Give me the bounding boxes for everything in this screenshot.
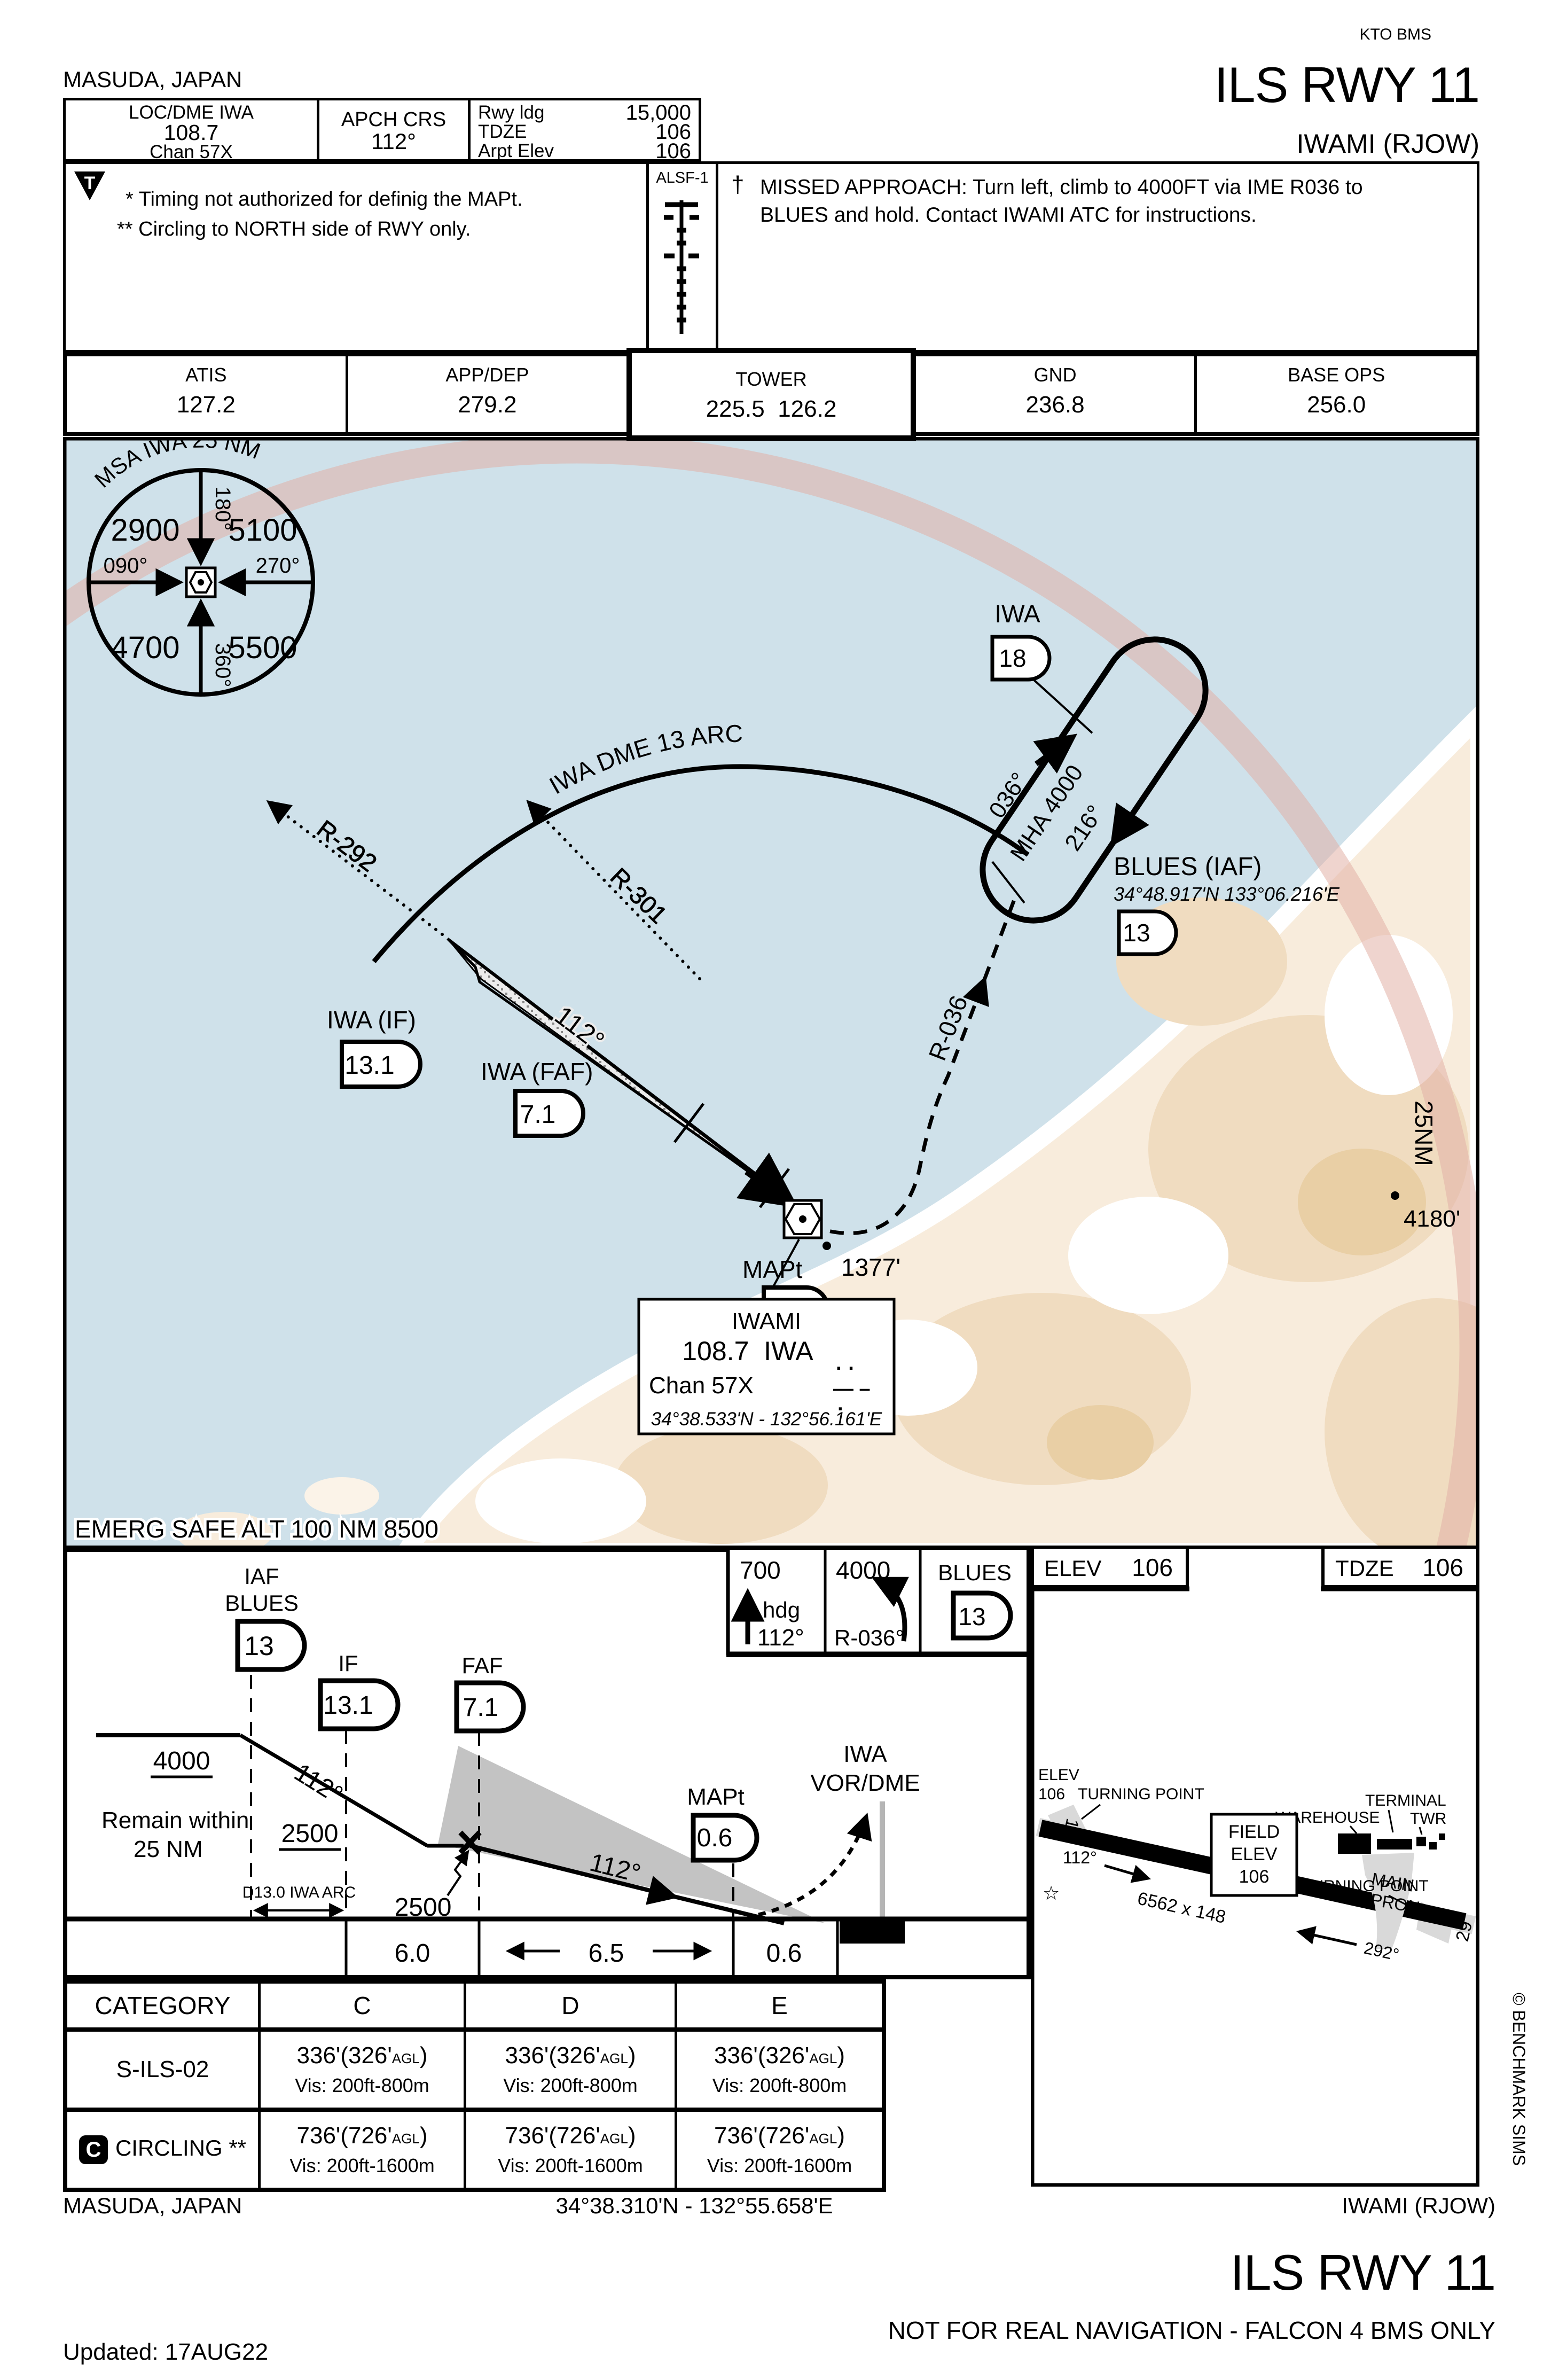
mb2-radial: R-036°: [834, 1625, 904, 1650]
arpt-elev-value: 106: [655, 142, 691, 161]
faf-dme: 7.1: [520, 1101, 556, 1129]
alt-4000: 4000: [153, 1747, 210, 1775]
freq-value: 236.8: [916, 392, 1195, 418]
freq-value: 127.2: [67, 392, 346, 418]
footer-airport: IWAMI (RJOW): [961, 2193, 1495, 2219]
circling-label: CIRCLING **: [115, 2135, 246, 2160]
dagger-icon: †: [731, 171, 744, 198]
turning-point-right: TURNING POINT: [1302, 1877, 1429, 1895]
mins-cell: 336'(326'AGL) Vis: 200ft-800m: [676, 2030, 884, 2110]
field-elev-box: FIELD ELEV 106: [1211, 1814, 1297, 1895]
mins-agl: AGL: [600, 2050, 628, 2066]
mb3-fix: BLUES: [938, 1560, 1012, 1585]
profile-faf: FAF 7.1: [457, 1653, 523, 1731]
circling-badge: C: [79, 2135, 108, 2164]
t-warning-icon: T: [74, 171, 105, 200]
freq-label: BASE OPS: [1197, 364, 1476, 386]
footer-copyright: © BENCHMARK SIMS: [1509, 1993, 1529, 2166]
fix-if: IWA (IF) 13.1: [327, 1006, 420, 1087]
mins-cell: 336'(326'AGL) Vis: 200ft-800m: [465, 2030, 676, 2110]
mb3-dme: 13: [958, 1603, 985, 1630]
mins-close: ): [628, 2123, 636, 2149]
nav-chan: Chan 57X: [66, 143, 317, 162]
runway-bar: [840, 1921, 905, 1944]
airport-diagram: ELEV 106 TDZE 106 11 29 6562 x 148 ELEV …: [1031, 1546, 1479, 2187]
tdze-value: 106: [1422, 1554, 1463, 1581]
freq-label: TOWER: [632, 368, 911, 391]
navaid-name: IWAMI: [732, 1308, 801, 1335]
profile-mapt: MAPt 0.6: [687, 1784, 757, 1860]
faf-dme: 7.1: [463, 1694, 499, 1722]
terminal-label: TERMINAL: [1365, 1792, 1446, 1809]
nav-title: LOC/DME IWA: [66, 103, 317, 122]
if-label: IF: [338, 1651, 358, 1676]
freq-label: APP/DEP: [348, 364, 627, 386]
ring-label-25nm: 25NM: [1410, 1101, 1438, 1166]
navaid-freq: 108.7 IWA: [682, 1336, 813, 1366]
msa-sw: 4700: [111, 630, 179, 665]
freq-label: ATIS: [67, 364, 346, 386]
msa-180: 180°: [211, 487, 234, 531]
freq-atis: ATIS 127.2: [67, 356, 348, 432]
if-dme: 13.1: [323, 1691, 373, 1720]
mins-agl: AGL: [809, 2131, 837, 2147]
mins-vis: Vis: 200ft-1600m: [466, 2155, 675, 2177]
emerg-safe-alt: EMERG SAFE ALT 100 NM 8500: [75, 1515, 438, 1543]
glideslope-wedge: [438, 1746, 825, 1923]
mapt-name: MAPt: [742, 1255, 803, 1283]
hold-dme: 18: [999, 644, 1026, 672]
plan-view: MSA IWA 25 NM 2900 5100 4700 5500 180° 0…: [63, 437, 1479, 1552]
spot-1377: 1377': [841, 1253, 900, 1281]
msa-090: 090°: [104, 554, 148, 578]
nav-freq: 108.7: [66, 122, 317, 143]
rwy-elev-value: 106: [1038, 1785, 1065, 1803]
hold-fix-label: IWA: [994, 600, 1040, 628]
mins-close: ): [837, 2123, 845, 2149]
arpt-elev-row: Arpt Elev 106: [478, 142, 691, 161]
divider: [646, 164, 649, 350]
vor-label-2: VOR/DME: [810, 1770, 920, 1796]
rwy-ldg-value: 15,000: [626, 103, 691, 122]
note-2: ** Circling to NORTH side of RWY only.: [117, 214, 523, 244]
vor-label-1: IWA: [843, 1741, 887, 1767]
missed-approach-boxes: 700 hdg 112° 4000 R-036° BLUES 13: [726, 1548, 1031, 1655]
profile-iaf: IAF BLUES 13: [225, 1564, 304, 1669]
msa-nw: 2900: [111, 513, 179, 548]
iaf-dme: 13: [244, 1631, 274, 1661]
star-icon: ☆: [1043, 1882, 1060, 1904]
freq-label: GND: [916, 364, 1195, 386]
navaid-box: IWAMI 108.7 IWA Chan 57X · · — – · 34°38…: [639, 1299, 894, 1434]
field-2: ELEV: [1231, 1844, 1278, 1864]
mins-vis: Vis: 200ft-800m: [261, 2074, 464, 2097]
mins-alt: 736'(726': [505, 2123, 600, 2149]
alsf-lighting-icon: [663, 190, 700, 342]
rwy-hdg-112: 112°: [1063, 1848, 1097, 1867]
procedure-title: ILS RWY 11: [785, 56, 1479, 114]
profile-if: IF 13.1: [320, 1651, 398, 1729]
mins-agl: AGL: [392, 2050, 420, 2066]
notes-band: T * Timing not authorized for definig th…: [63, 161, 1479, 353]
mins-close: ): [628, 2042, 636, 2069]
mins-close: ): [837, 2042, 845, 2069]
rwy-ldg-label: Rwy ldg: [478, 103, 544, 122]
publisher: KTO BMS: [1068, 26, 1431, 44]
profile-vor: IWA VOR/DME: [758, 1741, 920, 1918]
freq-gnd: GND 236.8: [916, 356, 1197, 432]
divider: [716, 164, 718, 350]
mins-agl: AGL: [392, 2131, 420, 2147]
dist-2: 6.5: [589, 1939, 624, 1968]
approach-chart: KTO BMS MASUDA, JAPAN ILS RWY 11 IWAMI (…: [0, 0, 1551, 2380]
freq-baseops: BASE OPS 256.0: [1197, 356, 1476, 432]
profile-view: 112° 112° 4000 2500 2500 IAF BLUES 13 IF…: [63, 1546, 1031, 1979]
minimums-table: CATEGORY C D E S-ILS-02 336'(326'AGL) Vi…: [63, 1979, 886, 2192]
remain-1: Remain within: [101, 1807, 249, 1833]
alt-2500a: 2500: [281, 1820, 339, 1848]
arc-note: D13.0 IWA ARC: [242, 1884, 356, 1901]
mins-vis: Vis: 200ft-1600m: [677, 2155, 882, 2177]
field-1: FIELD: [1228, 1822, 1280, 1842]
mins-header-c: C: [260, 1981, 465, 2030]
nav-box: LOC/DME IWA 108.7 Chan 57X: [66, 100, 317, 159]
faf-name: IWA (FAF): [481, 1058, 593, 1086]
mins-alt: 736'(726': [714, 2123, 809, 2149]
missed-approach-text: MISSED APPROACH: Turn left, climb to 400…: [760, 174, 1470, 229]
msa-ne: 5100: [228, 513, 297, 548]
chart-notes: * Timing not authorized for definig the …: [117, 184, 523, 244]
tdze-label: TDZE: [478, 122, 527, 142]
elev-label: ELEV: [1044, 1556, 1101, 1581]
rwy-row: Rwy ldg 15,000: [478, 103, 691, 122]
profile-course-1: 112°: [289, 1758, 348, 1809]
mapt-dme: 0.6: [697, 1824, 733, 1852]
apch-label: APCH CRS: [319, 109, 468, 130]
distance-row: 6.0 6.5 0.6: [65, 1919, 1029, 1975]
mins-alt: 336'(326': [505, 2042, 600, 2069]
mins-header-e: E: [676, 1981, 884, 2030]
mins-row-name-circling: CCIRCLING **: [65, 2110, 260, 2190]
mb1-alt: 700: [740, 1556, 781, 1584]
msa-270: 270°: [256, 554, 300, 578]
mins-alt: 736'(726': [297, 2123, 392, 2149]
blues-name: BLUES (IAF): [1114, 853, 1262, 881]
airport-title: IWAMI (RJOW): [785, 128, 1479, 159]
mins-cell: 736'(726'AGL) Vis: 200ft-1600m: [465, 2110, 676, 2190]
morse-code: · ·: [836, 1357, 855, 1380]
missed-line-1: MISSED APPROACH: Turn left, climb to 400…: [760, 174, 1470, 201]
mins-cell: 336'(326'AGL) Vis: 200ft-800m: [260, 2030, 465, 2110]
navaid-chan: Chan 57X: [649, 1372, 754, 1399]
mins-cell: 736'(726'AGL) Vis: 200ft-1600m: [676, 2110, 884, 2190]
mb2-alt: 4000: [836, 1556, 890, 1584]
elev-box: ELEV 106: [1031, 1547, 1189, 1589]
footer-coords: 34°38.310'N - 132°55.658'E: [374, 2193, 1015, 2219]
mapt-label: MAPt: [687, 1784, 745, 1810]
alsf-label: ALSF-1: [649, 169, 716, 187]
rwy-box: Rwy ldg 15,000 TDZE 106 Arpt Elev 106: [471, 100, 699, 159]
footer-city: MASUDA, JAPAN: [63, 2193, 242, 2219]
blues-dme: 13: [1123, 919, 1150, 947]
mins-row-name: S-ILS-02: [65, 2030, 260, 2110]
msa-se: 5500: [228, 630, 297, 665]
mins-vis: Vis: 200ft-1600m: [261, 2155, 464, 2177]
if-name: IWA (IF): [327, 1006, 416, 1034]
tdze-value: 106: [655, 122, 691, 142]
frequency-band: ATIS 127.2 APP/DEP 279.2 TOWER 225.5 126…: [63, 353, 1479, 436]
turning-point-left: TURNING POINT: [1078, 1785, 1204, 1803]
tdze-row: TDZE 106: [478, 122, 691, 142]
tdze-label: TDZE: [1335, 1556, 1394, 1581]
freq-tower: TOWER 225.5 126.2: [626, 348, 916, 441]
msa-360: 360°: [211, 643, 234, 688]
twr-label: TWR: [1410, 1810, 1446, 1828]
blues-coords: 34°48.917'N 133°06.216'E: [1114, 883, 1340, 905]
arpt-elev-label: Arpt Elev: [478, 142, 554, 161]
footer-updated: Updated: 17AUG22: [63, 2339, 268, 2366]
freq-value: 225.5 126.2: [632, 396, 911, 423]
mb1-hdg: hdg: [763, 1597, 800, 1622]
remain-2: 25 NM: [134, 1836, 203, 1862]
note-1: * Timing not authorized for definig the …: [117, 184, 523, 214]
mins-header-d: D: [465, 1981, 676, 2030]
faf-label: FAF: [461, 1653, 503, 1678]
mins-agl: AGL: [600, 2131, 628, 2147]
mb1-crs: 112°: [757, 1625, 804, 1651]
field-3: 106: [1239, 1867, 1270, 1887]
freq-value: 279.2: [348, 392, 627, 418]
mins-agl: AGL: [809, 2050, 837, 2066]
mins-close: ): [420, 2123, 428, 2149]
mins-cell: 736'(726'AGL) Vis: 200ft-1600m: [260, 2110, 465, 2190]
missed-line-2: BLUES and hold. Contact IWAMI ATC for in…: [760, 201, 1470, 229]
apch-box: APCH CRS 112°: [317, 100, 471, 159]
elev-value: 106: [1132, 1554, 1173, 1581]
header-info-boxes: LOC/DME IWA 108.7 Chan 57X APCH CRS 112°…: [63, 98, 701, 162]
freq-appdep: APP/DEP 279.2: [348, 356, 627, 432]
freq-value: 256.0: [1197, 392, 1476, 418]
iaf-label: IAF: [244, 1564, 279, 1589]
iaf-fix: BLUES: [225, 1590, 299, 1616]
mins-alt: 336'(326': [297, 2042, 392, 2069]
apch-value: 112°: [319, 130, 468, 153]
tdze-box: TDZE 106: [1321, 1547, 1479, 1589]
navaid-coords: 34°38.533'N - 132°56.161'E: [651, 1409, 882, 1430]
spot-4180: 4180': [1404, 1206, 1460, 1232]
mins-vis: Vis: 200ft-800m: [466, 2074, 675, 2097]
mins-alt: 336'(326': [714, 2042, 809, 2069]
chart-city: MASUDA, JAPAN: [63, 67, 242, 92]
rwy-elev-label: ELEV: [1038, 1766, 1079, 1784]
mins-close: ): [420, 2042, 428, 2069]
dist-1: 6.0: [395, 1939, 430, 1968]
if-dme: 13.1: [344, 1051, 394, 1080]
mins-header-category: CATEGORY: [65, 1981, 260, 2030]
footer-procedure: ILS RWY 11: [801, 2244, 1495, 2301]
mins-vis: Vis: 200ft-800m: [677, 2074, 882, 2097]
dist-3: 0.6: [766, 1939, 802, 1968]
footer-disclaimer: NOT FOR REAL NAVIGATION - FALCON 4 BMS O…: [641, 2316, 1495, 2345]
morse-code: — –: [833, 1378, 871, 1400]
